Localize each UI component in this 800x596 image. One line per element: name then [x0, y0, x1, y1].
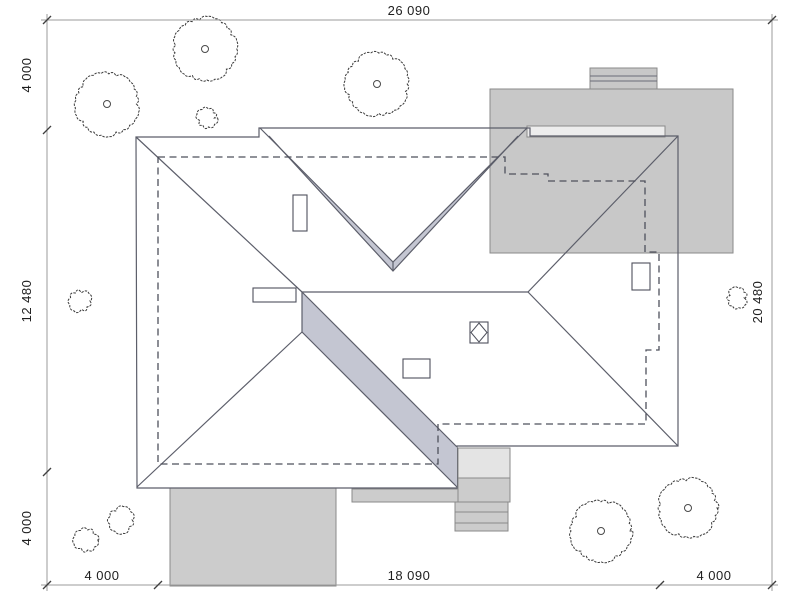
dim-label-left-3: 4 000: [19, 510, 34, 545]
dim-label-right: 20 480: [750, 281, 765, 324]
chimney-2: [253, 288, 296, 302]
outbuilding-light-strip: [527, 126, 665, 137]
outbuilding-chimney: [590, 68, 657, 89]
chimney-4: [632, 263, 650, 290]
skylight-diamond: [470, 322, 488, 343]
dim-label-bottom-3: 4 000: [696, 568, 731, 583]
roof-plan-drawing: 26 090 4 000 12 480 4 000 20 480 4 000 1…: [0, 0, 800, 596]
chimney-1: [293, 195, 307, 231]
dim-label-bottom-1: 4 000: [84, 568, 119, 583]
chimney-block: [590, 68, 657, 89]
skylight-frame: [470, 322, 488, 343]
outbuilding-block: [490, 89, 733, 253]
site-plan-canvas: 26 090 4 000 12 480 4 000 20 480 4 000 1…: [0, 0, 800, 596]
chimney-3: [403, 359, 430, 378]
driveway: [170, 488, 336, 586]
terrace-step-2: [455, 512, 508, 523]
terrace-step-1: [455, 502, 508, 512]
terrace-lower: [458, 478, 510, 502]
dim-label-bottom-2: 18 090: [388, 568, 431, 583]
terrace-upper: [458, 448, 510, 478]
terrace-step-3: [455, 523, 508, 531]
paving-strip: [352, 489, 462, 502]
dim-label-left-1: 4 000: [19, 57, 34, 92]
dim-label-top: 26 090: [388, 3, 431, 18]
dim-label-left-2: 12 480: [19, 280, 34, 323]
